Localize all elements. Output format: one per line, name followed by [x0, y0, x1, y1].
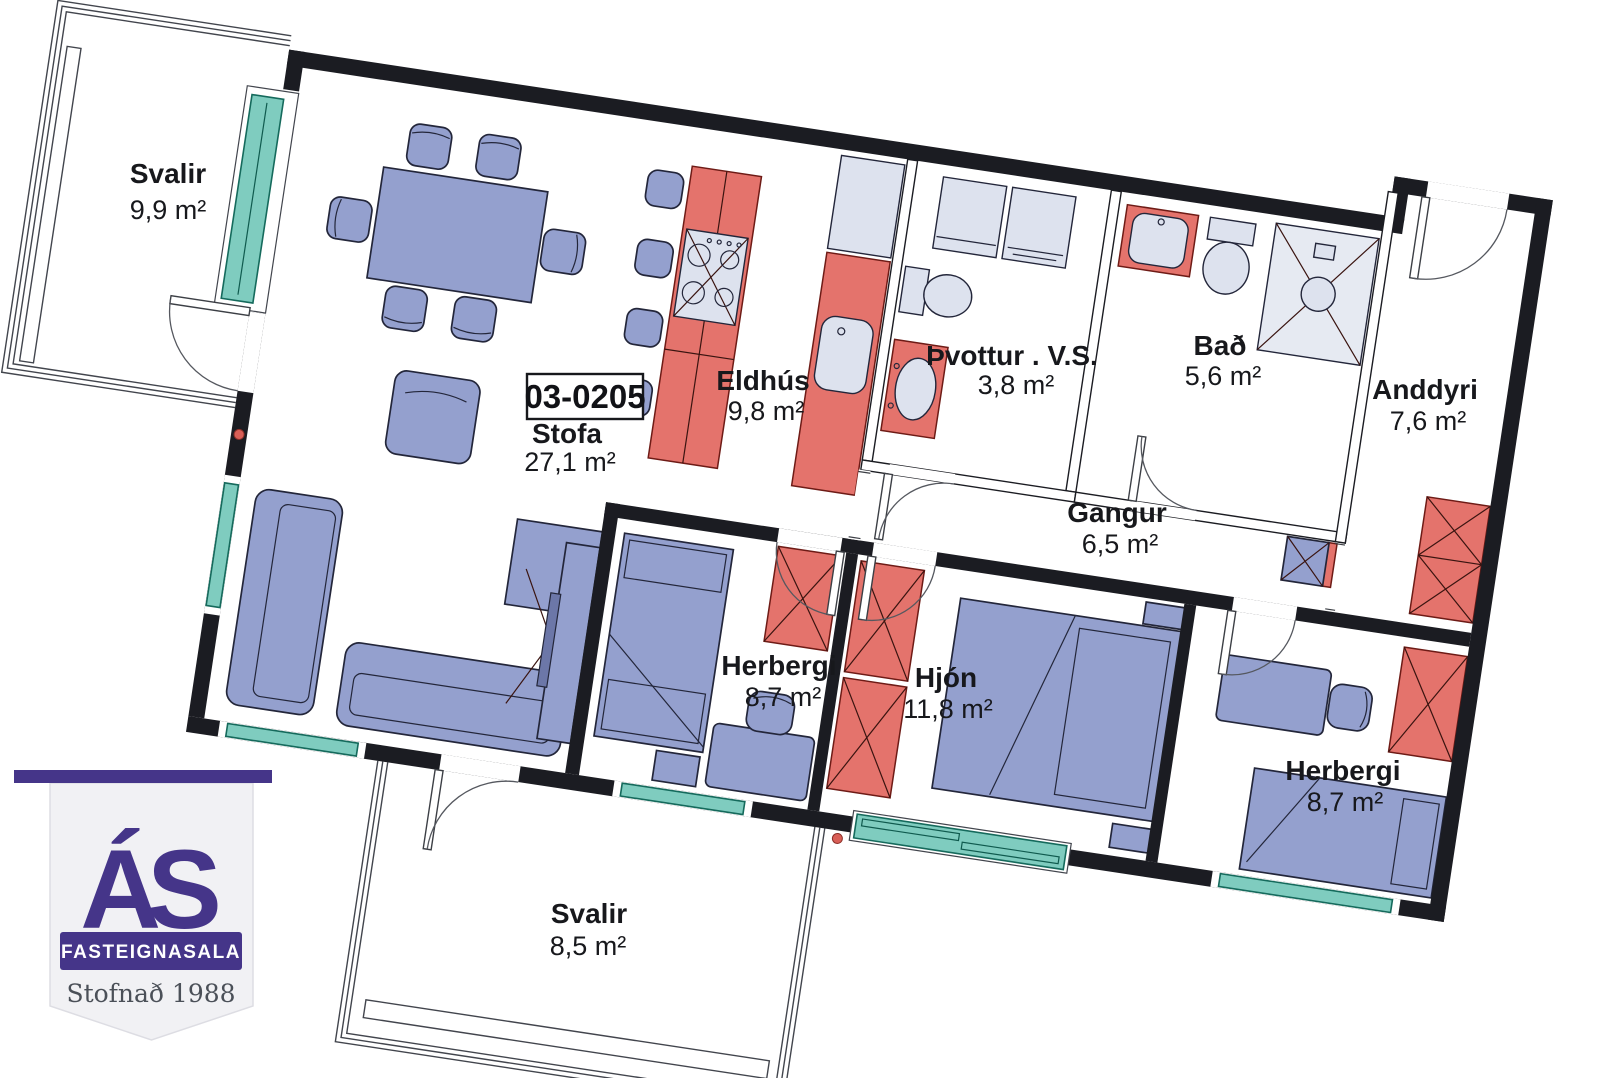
side-table [652, 750, 700, 786]
room-name: Herbergi [721, 650, 836, 681]
red-marker-dot [832, 833, 843, 844]
floor-plan-page: Svalir 9,9 m² 03-0205 Stofa 27,1 m² Eldh… [0, 0, 1600, 1078]
agency-logo: ÁS FASTEIGNASALA Stofnað 1988 [14, 770, 272, 1040]
room-name: Hjón [915, 662, 977, 693]
room-area: 9,8 m² [728, 396, 805, 426]
dryer [1002, 187, 1076, 268]
room-name: Þvottur . V.S. [926, 340, 1098, 371]
room-name: Anddyri [1372, 374, 1478, 405]
room-area: 6,5 m² [1082, 529, 1159, 559]
bar-stool [634, 238, 675, 279]
unit-id: 03-0205 [524, 378, 645, 415]
shower-head-mount [1314, 243, 1336, 260]
fridge [828, 155, 905, 258]
dining-chair [381, 285, 429, 333]
room-area: 11,8 m² [903, 694, 993, 724]
dining-chair [539, 228, 587, 276]
room-area: 3,8 m² [978, 370, 1055, 400]
room-name: Svalir [130, 158, 206, 189]
room-area: 8,7 m² [745, 682, 822, 712]
dining-chair [405, 123, 453, 171]
room-name: Bað [1194, 330, 1247, 361]
room-area: 27,1 m² [524, 447, 616, 477]
bar-stool [644, 169, 685, 210]
room-area: 7,6 m² [1390, 406, 1467, 436]
dining-chair [326, 196, 374, 244]
logo-tagline: Stofnað 1988 [66, 979, 235, 1008]
floor-plan: Svalir 9,9 m² 03-0205 Stofa 27,1 m² Eldh… [0, 0, 1600, 1078]
dining-chair [475, 133, 523, 181]
pennant-bar [14, 770, 272, 783]
room-name: Svalir [551, 898, 627, 929]
logo-band-text: FASTEIGNASALA [61, 942, 241, 963]
room-area: 9,9 m² [130, 195, 207, 225]
dining-chair [450, 295, 498, 343]
room-name: Stofa [532, 418, 602, 449]
room-name: Gangur [1067, 497, 1167, 528]
bar-stool [623, 307, 664, 348]
room-area: 8,7 m² [1307, 787, 1384, 817]
room-name: Eldhús [716, 365, 809, 396]
kitchen-sink [813, 314, 875, 395]
room-area: 5,6 m² [1185, 361, 1262, 391]
room-label-eldhus: Eldhús 9,8 m² [716, 365, 809, 426]
unit-badge: 03-0205 [524, 374, 645, 419]
armchair [384, 369, 482, 465]
room-area: 8,5 m² [550, 931, 627, 961]
dining-table [367, 167, 548, 303]
room-name: Herbergi [1285, 755, 1400, 786]
